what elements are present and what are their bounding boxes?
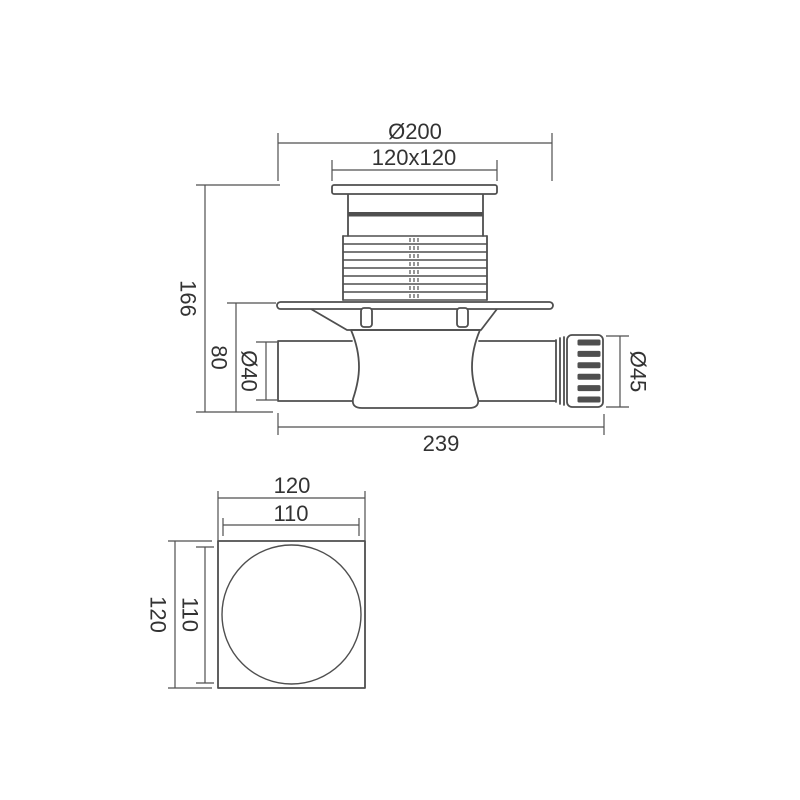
dim-left-inner-height-label: 110 xyxy=(178,597,203,632)
trap-body xyxy=(351,330,480,408)
dim-flange-diameter-label: Ø200 xyxy=(388,119,442,144)
dim-grate-size: 120x120 xyxy=(332,145,497,181)
clip-left xyxy=(361,308,372,327)
lock-nut xyxy=(567,335,603,407)
dim-total-length-label: 239 xyxy=(423,431,460,456)
gasket-band xyxy=(349,212,483,217)
dim-left-outer-height-label: 120 xyxy=(146,596,171,633)
clip-right xyxy=(457,308,468,327)
dim-outlet-diameter-label: Ø45 xyxy=(626,351,651,393)
grate-outline xyxy=(218,541,365,688)
inlet-pipe xyxy=(278,341,352,401)
top-flange xyxy=(332,185,497,194)
dim-left-inner-height: 110 xyxy=(178,547,215,683)
dim-inlet-diameter-label: Ø40 xyxy=(237,350,262,392)
mounting-plate xyxy=(277,302,553,309)
thread-ribs xyxy=(343,236,487,300)
side-view: Ø200 120x120 166 80 Ø40 Ø45 239 xyxy=(176,119,651,456)
funnel xyxy=(311,309,497,330)
dim-total-height: 166 xyxy=(176,185,281,412)
compression-rings xyxy=(556,337,564,405)
grate-circle xyxy=(222,545,361,684)
outlet-pipe xyxy=(479,341,555,401)
dim-total-height-label: 166 xyxy=(176,280,201,317)
dim-top-outer-width-label: 120 xyxy=(274,473,311,498)
dim-grate-size-label: 120x120 xyxy=(372,145,456,170)
dim-top-inner-width: 110 xyxy=(223,501,359,536)
floor-drain-technical-drawing: Ø200 120x120 166 80 Ø40 Ø45 239 xyxy=(0,0,800,800)
top-view: 120 110 120 110 xyxy=(146,473,366,688)
drawing-canvas: Ø200 120x120 166 80 Ø40 Ø45 239 xyxy=(0,0,800,800)
dim-inlet-diameter: Ø40 xyxy=(237,342,278,400)
dim-top-inner-width-label: 110 xyxy=(273,501,308,526)
dim-body-height-label: 80 xyxy=(207,345,232,369)
dim-outlet-diameter: Ø45 xyxy=(606,336,651,407)
dim-total-length: 239 xyxy=(278,413,604,456)
